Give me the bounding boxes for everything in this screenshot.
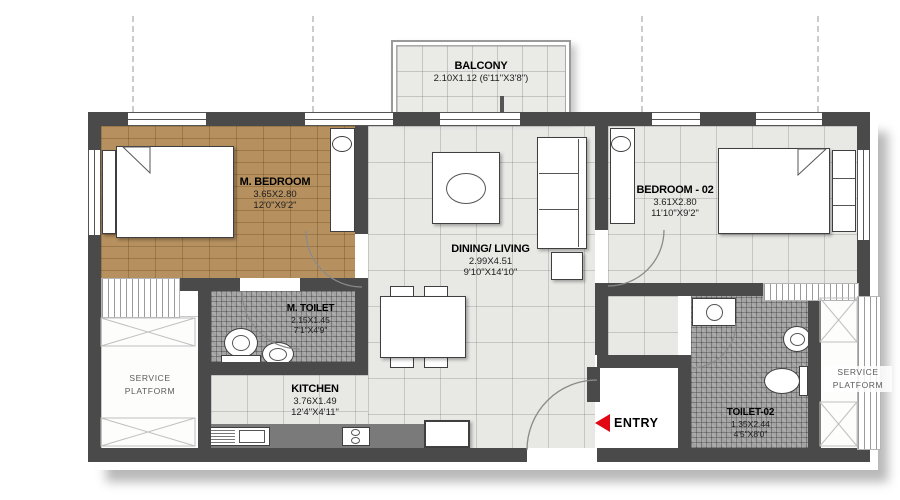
entry-label: ENTRY	[614, 416, 658, 430]
m-toilet-label: M. TOILET 2.15X1.45 7'1"X4'9"	[258, 303, 363, 335]
rug	[432, 152, 500, 224]
room-dims: 4'5"X8'0"	[693, 429, 808, 439]
burner	[351, 429, 360, 436]
room-name: M. TOILET	[258, 303, 363, 315]
wall-bedroom02-bottom	[595, 283, 763, 296]
stool-02	[611, 136, 631, 152]
room-name: M. BEDROOM	[195, 176, 355, 189]
entry-marker: ENTRY	[595, 414, 658, 432]
toilet-02-wc-tank	[799, 366, 808, 396]
service-platform-right-label: SERVICE PLATFORM	[824, 366, 892, 392]
louver-bedroom02-bottom	[763, 283, 859, 301]
room-dims: 3.61X2.80	[600, 197, 750, 208]
wc-seat	[232, 335, 250, 351]
room-dims: 11'10"X9'2"	[600, 208, 750, 219]
stool-master	[332, 136, 352, 152]
room-dims: 9'10"X14'10"	[408, 267, 573, 278]
room-dims: 2.99X4.51	[408, 256, 573, 267]
bedroom-02-label: BEDROOM - 02 3.61X2.80 11'10"X9'2"	[600, 184, 750, 219]
window-mbedroom-left	[88, 150, 101, 235]
bedside-shelf-02	[832, 150, 856, 232]
room-dims: 12'4"X4'11"	[240, 407, 390, 418]
wall-service-divider-right	[808, 291, 821, 462]
dining-living-label: DINING/ LIVING 2.99X4.51 9'10"X14'10"	[408, 243, 573, 278]
hob	[342, 427, 370, 446]
wall-bedroom02-left-bottom	[595, 287, 608, 355]
room-name: BALCONY	[393, 60, 569, 73]
room-name: TOILET-02	[693, 407, 808, 419]
washer-drum	[706, 304, 723, 321]
wall-mbedroom-right-top	[355, 112, 368, 234]
window-bedroom02-top-2	[756, 112, 822, 126]
kitchen-label: KITCHEN 3.76X1.49 12'4"X4'11"	[240, 383, 390, 418]
sink-drainboard	[211, 430, 235, 443]
floor-plan: BALCONY 2.10X1.12 (6'11"X3'8") M. BEDROO…	[0, 0, 900, 500]
kitchen-sink-unit	[208, 427, 270, 446]
wall-mbedroom-bottom-b	[300, 278, 368, 291]
basin-bowl	[269, 348, 287, 361]
room-name: BEDROOM - 02	[600, 184, 750, 197]
window-mbedroom-top	[128, 112, 206, 126]
dining-table	[380, 296, 466, 358]
room-name: KITCHEN	[240, 383, 390, 396]
washing-machine	[692, 298, 736, 326]
room-dims: 2.10X1.12 (6'11"X3'8")	[393, 73, 569, 84]
sofa-back-line	[578, 139, 579, 247]
toilet-02-label: TOILET-02 1.35X2.44 4'5"X8'0"	[693, 407, 808, 439]
m-bedroom-label: M. BEDROOM 3.65X2.80 12'0"X9'2"	[195, 176, 355, 211]
room-dims: 2.15X1.45	[258, 315, 363, 325]
balcony-label: BALCONY 2.10X1.12 (6'11"X3'8")	[393, 60, 569, 84]
louver-service-left	[101, 278, 180, 318]
washbasin-02	[783, 326, 811, 352]
burner	[351, 437, 360, 444]
corridor-floor	[608, 296, 678, 355]
sofa-cushion-line	[539, 209, 579, 210]
room-dims: 12'0"X9'2"	[195, 200, 355, 211]
window-mbedroom-top-2	[305, 112, 393, 126]
room-dims: 7'1"X4'9"	[258, 325, 363, 335]
service-platform-left-label: SERVICE PLATFORM	[110, 372, 190, 398]
sink-bowl	[239, 430, 265, 443]
balcony-door-opening	[440, 112, 520, 126]
wall-mtoilet-bottom	[198, 362, 368, 375]
wall-toilet02-left	[678, 355, 691, 462]
sofa-cushion-line	[539, 173, 579, 174]
shelf-line	[833, 205, 855, 206]
basin-02-bowl	[790, 333, 805, 346]
room-dims: 3.65X2.80	[195, 189, 355, 200]
coffee-table	[446, 173, 486, 204]
bedside-shelf	[102, 150, 116, 234]
wall-entry-stub	[587, 367, 600, 402]
sofa	[537, 137, 587, 249]
room-dims: 3.76X1.49	[240, 396, 390, 407]
toilet-02-wc	[764, 368, 800, 394]
shelf-line	[833, 178, 855, 179]
room-name: DINING/ LIVING	[408, 243, 573, 256]
window-bedroom02-right	[857, 150, 870, 240]
window-bedroom02-top	[652, 112, 700, 126]
wall-entry-alcove-top	[597, 355, 691, 368]
entry-arrow-icon	[595, 414, 610, 432]
refrigerator	[424, 420, 470, 448]
wall-bottom-right	[597, 448, 870, 462]
wall-bottom-left	[88, 448, 527, 462]
room-dims: 1.35X2.44	[693, 419, 808, 429]
toilet-wc	[224, 328, 258, 358]
